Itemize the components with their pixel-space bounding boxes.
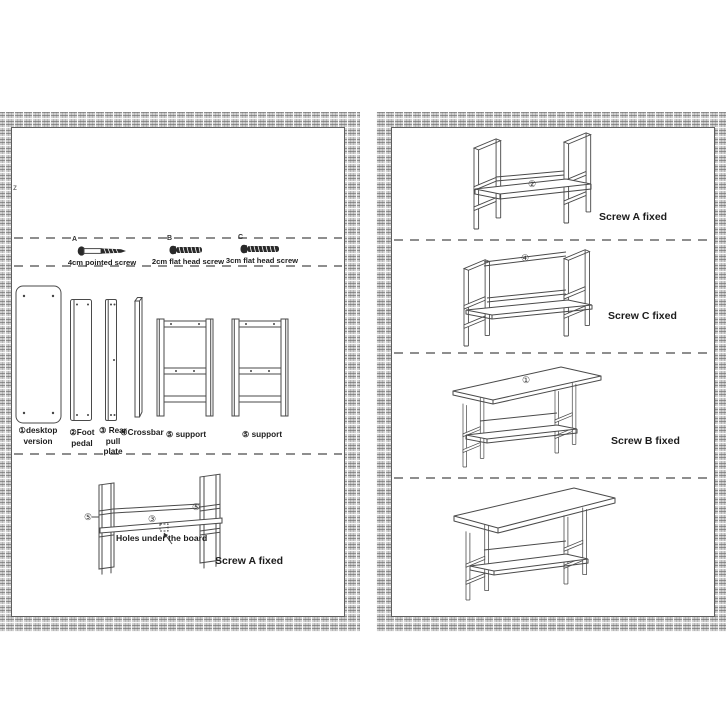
callout-crossbar-top: ④ <box>521 253 529 264</box>
left-page-content: z A 4cm pointed screw B <box>11 127 345 617</box>
right-page-content: ② Screw A fixed <box>391 127 715 617</box>
step-3-note: Screw B fixed <box>611 435 680 447</box>
flat-head-screw-icon <box>239 243 285 255</box>
support-frame-diagram <box>230 316 290 422</box>
callout-support-left: ⑤ <box>84 512 92 523</box>
screw-a-fixed-note: Screw A fixed <box>215 555 283 567</box>
foot-pedal-diagram <box>69 298 94 422</box>
divider-dashed-line <box>394 477 712 479</box>
stray-scan-mark: z <box>13 183 17 192</box>
callout-support-right: ⑤ <box>192 502 200 513</box>
right-instruction-page: ② Screw A fixed <box>376 112 726 632</box>
screw-name-a: 4cm pointed screw <box>54 258 150 267</box>
flat-head-screw-icon <box>168 244 208 256</box>
step-2-crossbar-diagram <box>454 246 614 348</box>
screw-letter-b: B <box>167 235 172 242</box>
assembly-step-1: ② Screw A fixed <box>460 131 710 236</box>
part-label-foot-pedal: ②Foot pedal <box>65 428 99 449</box>
assembly-step-4 <box>452 486 710 606</box>
pointed-screw-icon <box>77 245 127 257</box>
step-1-note: Screw A fixed <box>599 211 667 223</box>
callout-shelf-board: ② <box>528 179 536 190</box>
callout-crossbar: ③ <box>148 514 156 525</box>
finished-desk-diagram <box>452 486 617 604</box>
screw-letter-c: C <box>238 234 243 241</box>
screw-letter-a: A <box>72 236 77 243</box>
screw-name-c: 3cm flat head screw <box>216 256 308 265</box>
part-label-desktop: ①desktop version <box>10 426 66 447</box>
manual-scan: z A 4cm pointed screw B <box>0 0 726 726</box>
divider-dashed-line <box>14 453 342 455</box>
rear-pull-plate-diagram <box>104 298 119 422</box>
part-label-support-1: ⑤ support <box>158 430 214 441</box>
assembly-step-2: ④ Screw C fixed <box>454 246 710 350</box>
divider-dashed-line <box>394 239 712 241</box>
frame-assembly-step: ⑤ ③ ⑤ Holes under the board Screw A fixe… <box>76 469 286 614</box>
left-instruction-page: z A 4cm pointed screw B <box>0 112 360 632</box>
desktop-panel-diagram <box>15 285 63 425</box>
support-frame-diagram <box>155 316 215 422</box>
callout-desktop-board: ① <box>522 375 530 386</box>
part-label-support-2: ⑤ support <box>234 430 290 441</box>
screw-spec-c: C 3cm flat head screw <box>216 236 308 265</box>
step-2-note: Screw C fixed <box>608 310 677 322</box>
divider-dashed-line <box>394 352 712 354</box>
holes-under-board-note: Holes under the board <box>116 533 207 543</box>
crossbar-diagram <box>132 296 144 422</box>
screw-spec-a: A 4cm pointed screw <box>54 238 150 267</box>
assembly-step-3: ① Screw B fixed <box>449 363 710 473</box>
